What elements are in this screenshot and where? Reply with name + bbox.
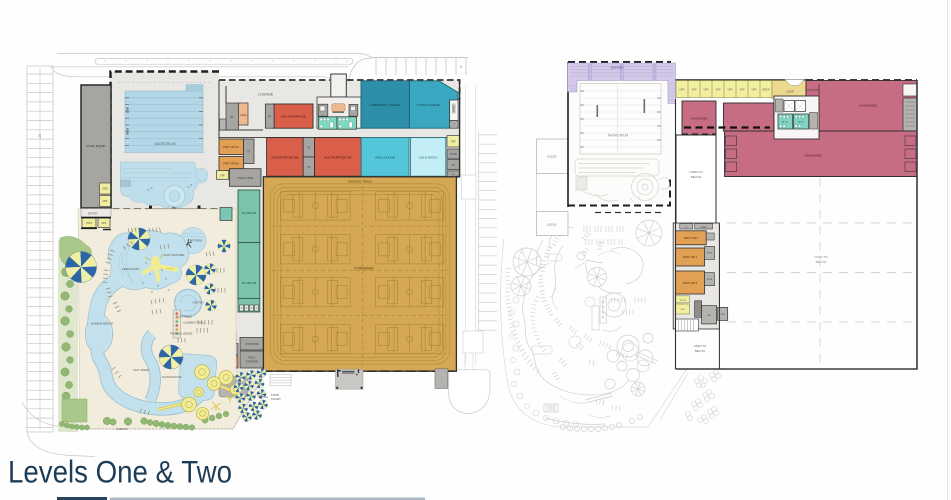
svg-text:OFF: OFF	[680, 89, 685, 92]
svg-text:STORAGE: STORAGE	[246, 361, 259, 364]
svg-text:PARTY RM 4: PARTY RM 4	[683, 256, 698, 259]
svg-text:26: 26	[38, 134, 42, 138]
svg-text:VORTEX: VORTEX	[192, 301, 204, 305]
svg-text:W: W	[685, 227, 687, 229]
svg-text:UNASSIGNED: UNASSIGNED	[691, 118, 708, 121]
svg-text:CABANA: CABANA	[116, 427, 128, 431]
svg-text:COMMUNITY LOUNGE: COMMUNITY LOUNGE	[370, 103, 401, 107]
svg-text:MULTI-PURPOSE: MULTI-PURPOSE	[281, 115, 305, 119]
svg-text:GRD: GRD	[102, 188, 108, 191]
svg-text:CAFE: CAFE	[240, 113, 247, 117]
svg-text:CATER: CATER	[700, 226, 707, 229]
svg-text:BUBBLE BENCH: BUBBLE BENCH	[91, 322, 113, 326]
svg-text:OFF: OFF	[102, 222, 107, 225]
svg-text:PARTY RM #2: PARTY RM #2	[223, 163, 239, 166]
svg-text:OFF: OFF	[728, 89, 733, 92]
svg-text:OFF: OFF	[451, 141, 456, 144]
svg-text:YOUTH LOUNGE: YOUTH LOUNGE	[416, 103, 439, 107]
svg-text:OFF: OFF	[680, 309, 685, 311]
svg-text:OFF: OFF	[721, 314, 726, 316]
svg-text:OPEN TO: OPEN TO	[690, 170, 704, 174]
svg-text:RECP: RECP	[763, 89, 770, 92]
svg-text:8: 8	[460, 65, 462, 69]
svg-text:ST: ST	[268, 115, 272, 119]
svg-text:PARTY RM 5: PARTY RM 5	[683, 282, 698, 285]
svg-text:OFF: OFF	[692, 89, 697, 92]
svg-text:CLIMBING WALL: CLIMBING WALL	[183, 321, 205, 325]
svg-text:ROOF: ROOF	[547, 155, 556, 159]
svg-text:PARTY RM 3: PARTY RM 3	[684, 237, 699, 240]
svg-text:POOL EQUIP: POOL EQUIP	[87, 144, 106, 148]
svg-text:KIDS LOUNGE: KIDS LOUNGE	[375, 156, 394, 160]
svg-text:ST: ST	[230, 115, 234, 119]
svg-text:GYMNASIUM: GYMNASIUM	[354, 267, 374, 271]
svg-text:NATATORIUM: NATATORIUM	[608, 134, 629, 138]
svg-text:STOR: STOR	[450, 153, 457, 156]
svg-text:OFF: OFF	[716, 89, 721, 92]
svg-text:Levels One & Two: Levels One & Two	[8, 454, 232, 490]
svg-text:W TLT: W TLT	[782, 122, 789, 124]
svg-text:ST: ST	[307, 166, 311, 169]
svg-text:M TLT: M TLT	[798, 122, 804, 124]
svg-text:MULTIPURPOSE RM: MULTIPURPOSE RM	[324, 156, 352, 160]
svg-text:OFF: OFF	[740, 89, 745, 92]
svg-text:WR: WR	[707, 315, 711, 317]
svg-text:PARTY RM #1: PARTY RM #1	[223, 146, 239, 149]
svg-text:LAZY RIVER: LAZY RIVER	[133, 368, 149, 372]
svg-text:STOR: STOR	[679, 300, 685, 302]
svg-text:ZERO ENTRY: ZERO ENTRY	[122, 267, 140, 271]
svg-text:OFF: OFF	[220, 174, 225, 177]
svg-text:SEATING: SEATING	[611, 65, 624, 69]
svg-text:ROOF: ROOF	[547, 223, 556, 227]
svg-text:M LCKR RM: M LCKR RM	[242, 282, 256, 285]
svg-text:STOR: STOR	[707, 279, 713, 281]
svg-text:ST: ST	[247, 151, 251, 154]
svg-text:POOL STOR: POOL STOR	[237, 176, 253, 180]
svg-text:TCKT: TCKT	[86, 222, 93, 225]
svg-text:SPT POOL: SPT POOL	[190, 239, 203, 243]
svg-text:NATATORIUM: NATATORIUM	[154, 142, 175, 146]
svg-text:OFF: OFF	[752, 89, 757, 92]
svg-text:OPEN TO: OPEN TO	[694, 344, 707, 348]
svg-text:UNASSIGNED: UNASSIGNED	[859, 104, 876, 108]
svg-text:COURT: COURT	[271, 397, 281, 401]
svg-text:OFF: OFF	[704, 89, 709, 92]
svg-text:LOUNGE: LOUNGE	[258, 93, 274, 97]
svg-text:OPEN TO: OPEN TO	[814, 255, 828, 259]
svg-text:BELOW: BELOW	[816, 260, 827, 264]
svg-text:POOL: POOL	[249, 357, 257, 360]
svg-text:UNASSIGNED: UNASSIGNED	[804, 154, 821, 158]
svg-text:GYM STOR: GYM STOR	[245, 343, 258, 346]
svg-text:CONF: CONF	[786, 90, 794, 94]
svg-text:TANNING LEDGE: TANNING LEDGE	[170, 332, 193, 336]
svg-text:PLUNGE POOL: PLUNGE POOL	[162, 375, 182, 379]
svg-text:BELOW: BELOW	[691, 175, 702, 179]
svg-text:ST: ST	[307, 147, 311, 150]
svg-text:OFF: OFF	[103, 200, 108, 203]
svg-text:W LCKR RM: W LCKR RM	[242, 212, 256, 215]
svg-text:FLOATABLE: FLOATABLE	[176, 315, 192, 319]
svg-text:MULTIPURPOSE RM: MULTIPURPOSE RM	[271, 156, 299, 160]
svg-text:PLAY FEATURE: PLAY FEATURE	[164, 253, 185, 257]
svg-text:ST: ST	[452, 164, 456, 167]
svg-text:JOGGING TRACK: JOGGING TRACK	[348, 180, 373, 184]
svg-text:CHILD WATCH: CHILD WATCH	[418, 156, 437, 160]
svg-text:ENTRY: ENTRY	[88, 212, 98, 216]
svg-text:STOR: STOR	[707, 253, 713, 255]
svg-text:BELOW: BELOW	[695, 349, 705, 353]
